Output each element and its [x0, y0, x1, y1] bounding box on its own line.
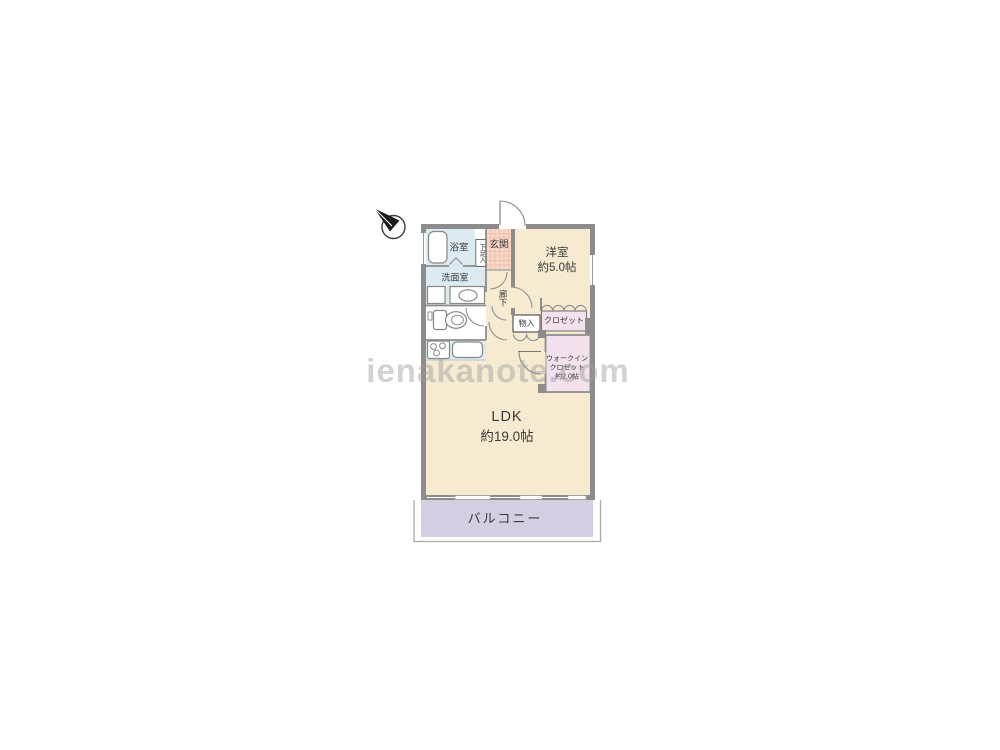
washroom-label: 洗面室 — [441, 273, 468, 284]
hallway-label: 廊下 — [498, 290, 508, 307]
entrance-door-arc — [500, 201, 525, 226]
balcony-label: バルコニー — [468, 511, 543, 527]
western-room-size: 約5.0帖 — [538, 261, 577, 276]
closet-label: クロゼット — [544, 316, 584, 326]
shoe-cupboard-label: 下足入 — [477, 243, 485, 263]
floorplan-page: 浴室 下足入 玄関 洗面室 廊下 洋室 約5.0帖 物入 クロゼット ウォークイ… — [0, 0, 1000, 750]
ldk-name: LDK — [480, 408, 533, 427]
western-room-name: 洋室 — [538, 246, 577, 261]
western-room-label: 洋室 約5.0帖 — [538, 246, 577, 276]
bathtub-fixture — [429, 232, 448, 264]
entrance-label: 玄関 — [489, 239, 508, 250]
bathroom-label: 浴室 — [449, 242, 468, 253]
storage-label: 物入 — [519, 319, 535, 329]
window-right-bedroom — [590, 255, 595, 285]
toilet-remote-fixture — [428, 312, 432, 320]
entrance-door-opening — [499, 224, 526, 229]
window-left-bathroom — [421, 233, 426, 264]
ldk-size: 約19.0帖 — [480, 427, 533, 446]
toilet-tank-fixture — [434, 311, 447, 330]
site-watermark: ienakanote.com — [366, 352, 629, 390]
washer-pan-fixture — [428, 287, 446, 304]
compass-icon — [375, 209, 406, 239]
ldk-label: LDK 約19.0帖 — [480, 408, 533, 446]
